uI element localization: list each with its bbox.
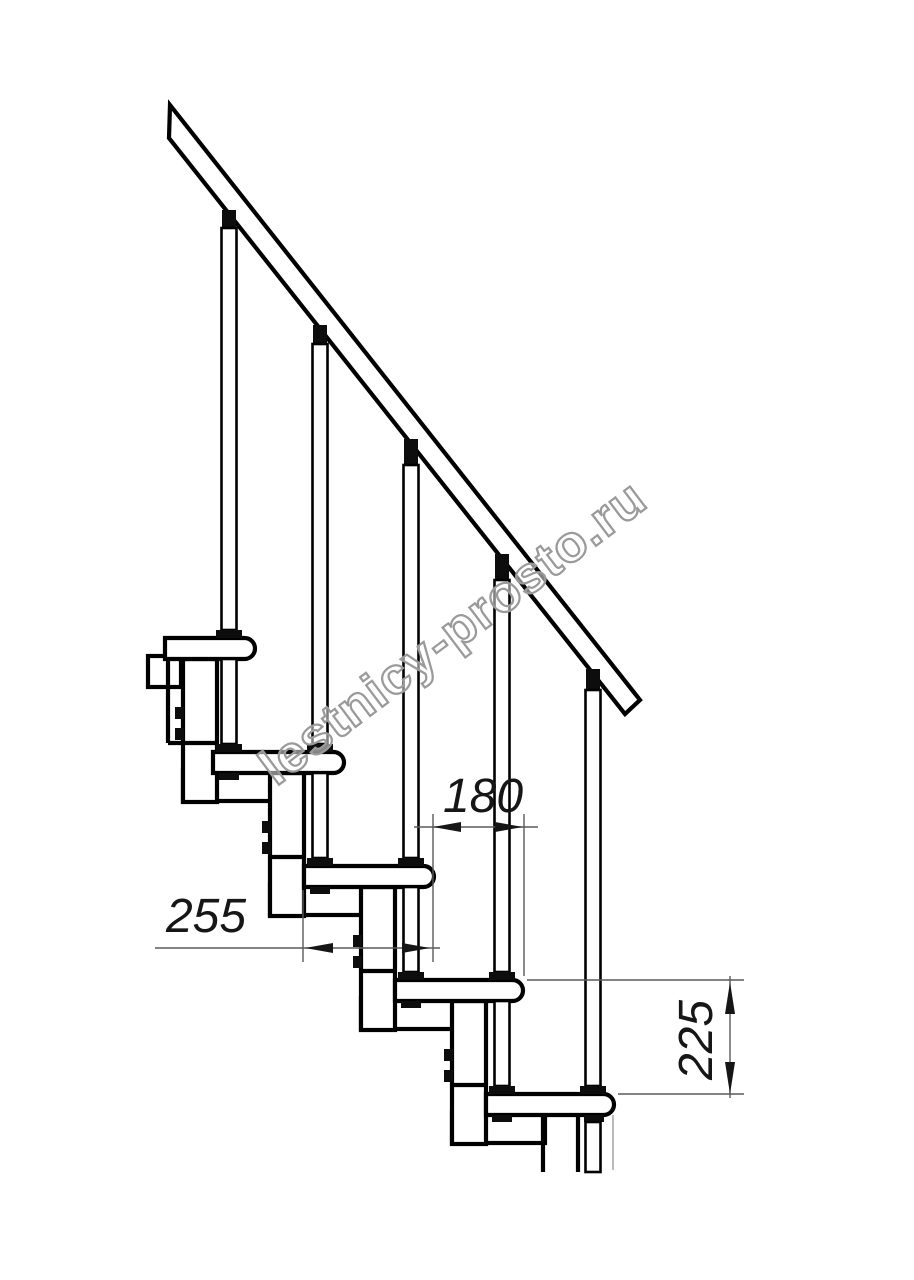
arrowhead-down <box>725 1062 735 1094</box>
baluster-3 <box>398 439 424 1008</box>
base-plate <box>307 858 333 866</box>
column-bolt <box>353 935 362 947</box>
arrowhead-left <box>305 943 333 953</box>
baluster-tube <box>313 344 328 744</box>
lock-nut <box>401 1001 421 1008</box>
dimension-label-rise: 225 <box>670 1000 723 1081</box>
base-plate <box>216 744 242 752</box>
base-plate <box>398 972 424 980</box>
baluster-1 <box>216 210 242 780</box>
lock-nut <box>219 773 239 780</box>
column-bolt <box>262 842 271 854</box>
staircase-side-elevation-drawing: 180 255 225 lestnicy-prosto.ru <box>0 0 914 1280</box>
arrowhead-left <box>433 822 461 832</box>
baluster-tube <box>222 228 237 630</box>
dimension-label-run: 180 <box>443 770 523 823</box>
tread-1 <box>165 638 255 659</box>
base-plate <box>489 972 515 980</box>
column-bolt <box>262 821 271 833</box>
baluster-lower-tube <box>313 773 328 858</box>
column-bolt <box>444 1070 453 1082</box>
base-plate <box>580 1086 606 1094</box>
support-column-3 <box>361 887 395 1030</box>
tread-5 <box>486 1094 614 1115</box>
dimension-step-run: 180 <box>414 770 538 976</box>
support-column-5 <box>543 1115 578 1172</box>
tread-3 <box>304 866 434 887</box>
column-bolt <box>175 707 184 719</box>
baluster-lower-tube <box>404 887 419 972</box>
baluster-lower-tube <box>586 1122 601 1172</box>
base-plate <box>398 858 424 866</box>
baluster-lower-tube <box>495 1001 510 1086</box>
support-column-2 <box>270 773 304 916</box>
base-plate <box>216 630 242 638</box>
baluster-lower-tube <box>222 659 237 744</box>
baluster-2 <box>307 325 333 894</box>
lock-nut <box>492 1115 512 1122</box>
arrowhead-up <box>725 982 735 1014</box>
drawing-canvas: 180 255 225 lestnicy-prosto.ru <box>0 0 914 1280</box>
dimension-step-rise: 225 <box>527 976 744 1098</box>
column-bolt <box>444 1049 453 1061</box>
column-bolt <box>175 728 184 740</box>
baluster-4 <box>489 554 515 1122</box>
baluster-tube <box>586 690 601 1086</box>
support-column-4 <box>452 1001 486 1144</box>
support-module-5-cut <box>543 1115 613 1172</box>
column-bolt <box>353 956 362 968</box>
tread-4 <box>395 980 523 1001</box>
lock-nut <box>310 887 330 894</box>
base-plate <box>489 1086 515 1094</box>
dimension-label-depth: 255 <box>165 890 246 943</box>
support-column-1 <box>183 659 217 802</box>
